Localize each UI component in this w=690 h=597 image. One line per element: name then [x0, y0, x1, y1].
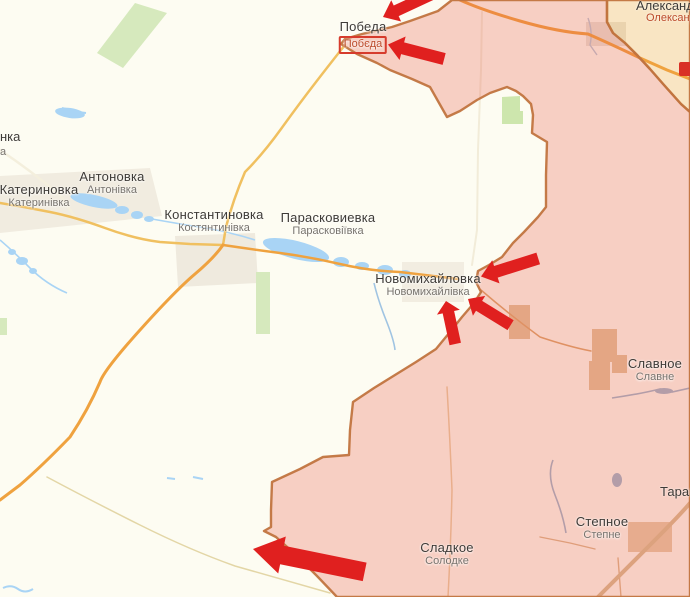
road-number-badge	[679, 62, 690, 76]
occupied-zone	[264, 0, 690, 597]
map-canvas[interactable]: ПобедаПобєдаКатериновкаКатеринівкаАнтоно…	[0, 0, 690, 597]
map-base	[0, 0, 690, 597]
